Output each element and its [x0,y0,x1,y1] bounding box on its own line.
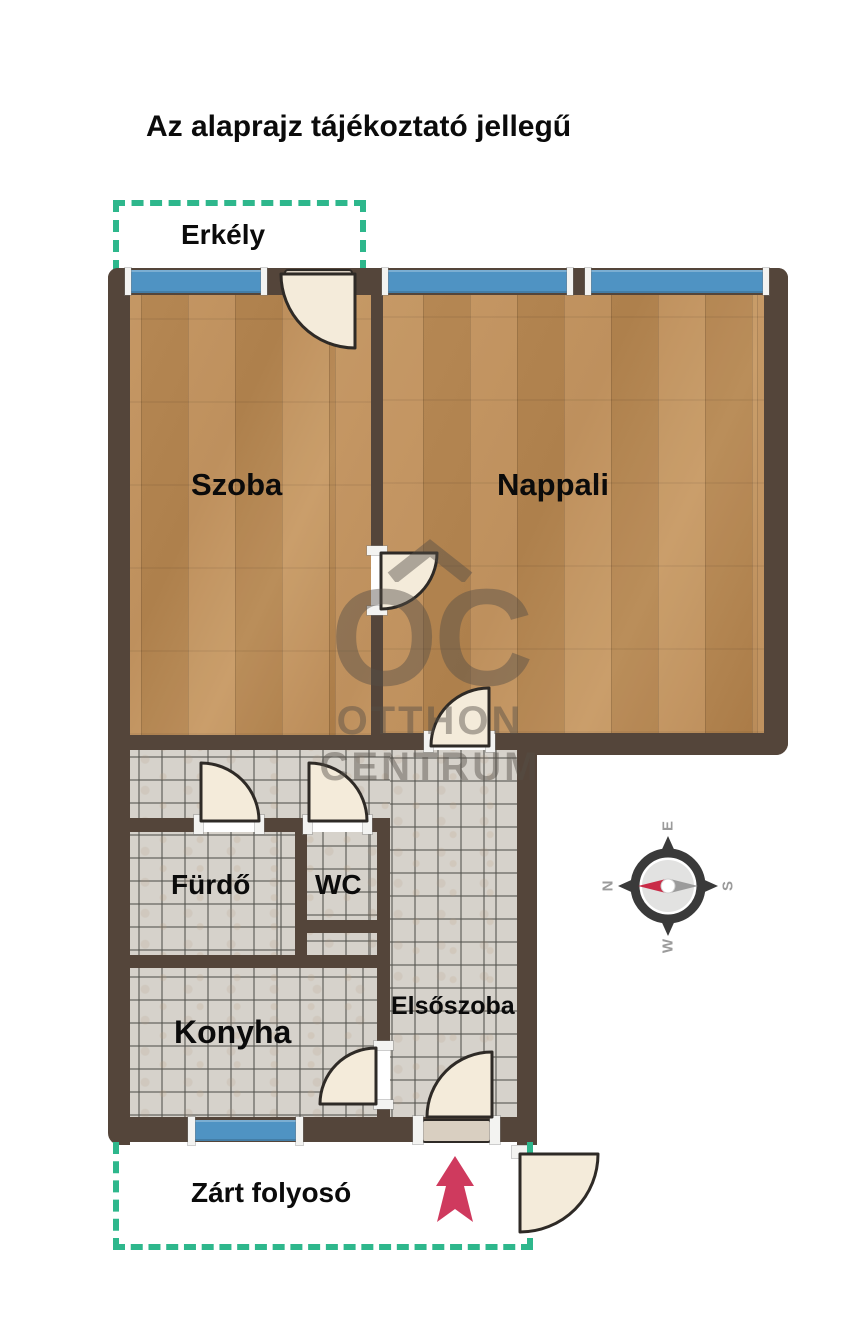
floor-plan: Az alaprajz tájékoztató jellegű Erkély [0,0,860,1340]
konyha-door-swing [320,1048,376,1104]
room-label-wc: WC [315,869,362,901]
compass-rose-icon: E N S W [598,816,738,956]
compass-label-north: N [600,881,617,892]
balcony-door-swing [281,274,355,348]
room-label-furdo: Fürdő [171,869,250,901]
compass-label-east: E [660,821,677,831]
compass-label-south: S [720,881,737,891]
door-arcs-layer [0,0,860,1340]
entrance-door-swing [427,1052,492,1117]
wc-door-swing [309,763,367,821]
corridor-exit-door-swing [520,1154,598,1232]
nappali-corridor-door-swing [431,688,489,746]
compass-label-west: W [660,938,677,953]
room-label-elsoszoba: Elsőszoba [391,992,515,1021]
room-label-konyha: Konyha [174,1014,291,1051]
room-label-szoba: Szoba [191,467,282,503]
room-label-nappali: Nappali [497,467,609,503]
entrance-arrow-icon [436,1156,474,1222]
szoba-nappali-door-swing [381,553,437,609]
furdo-door-swing [201,763,259,821]
